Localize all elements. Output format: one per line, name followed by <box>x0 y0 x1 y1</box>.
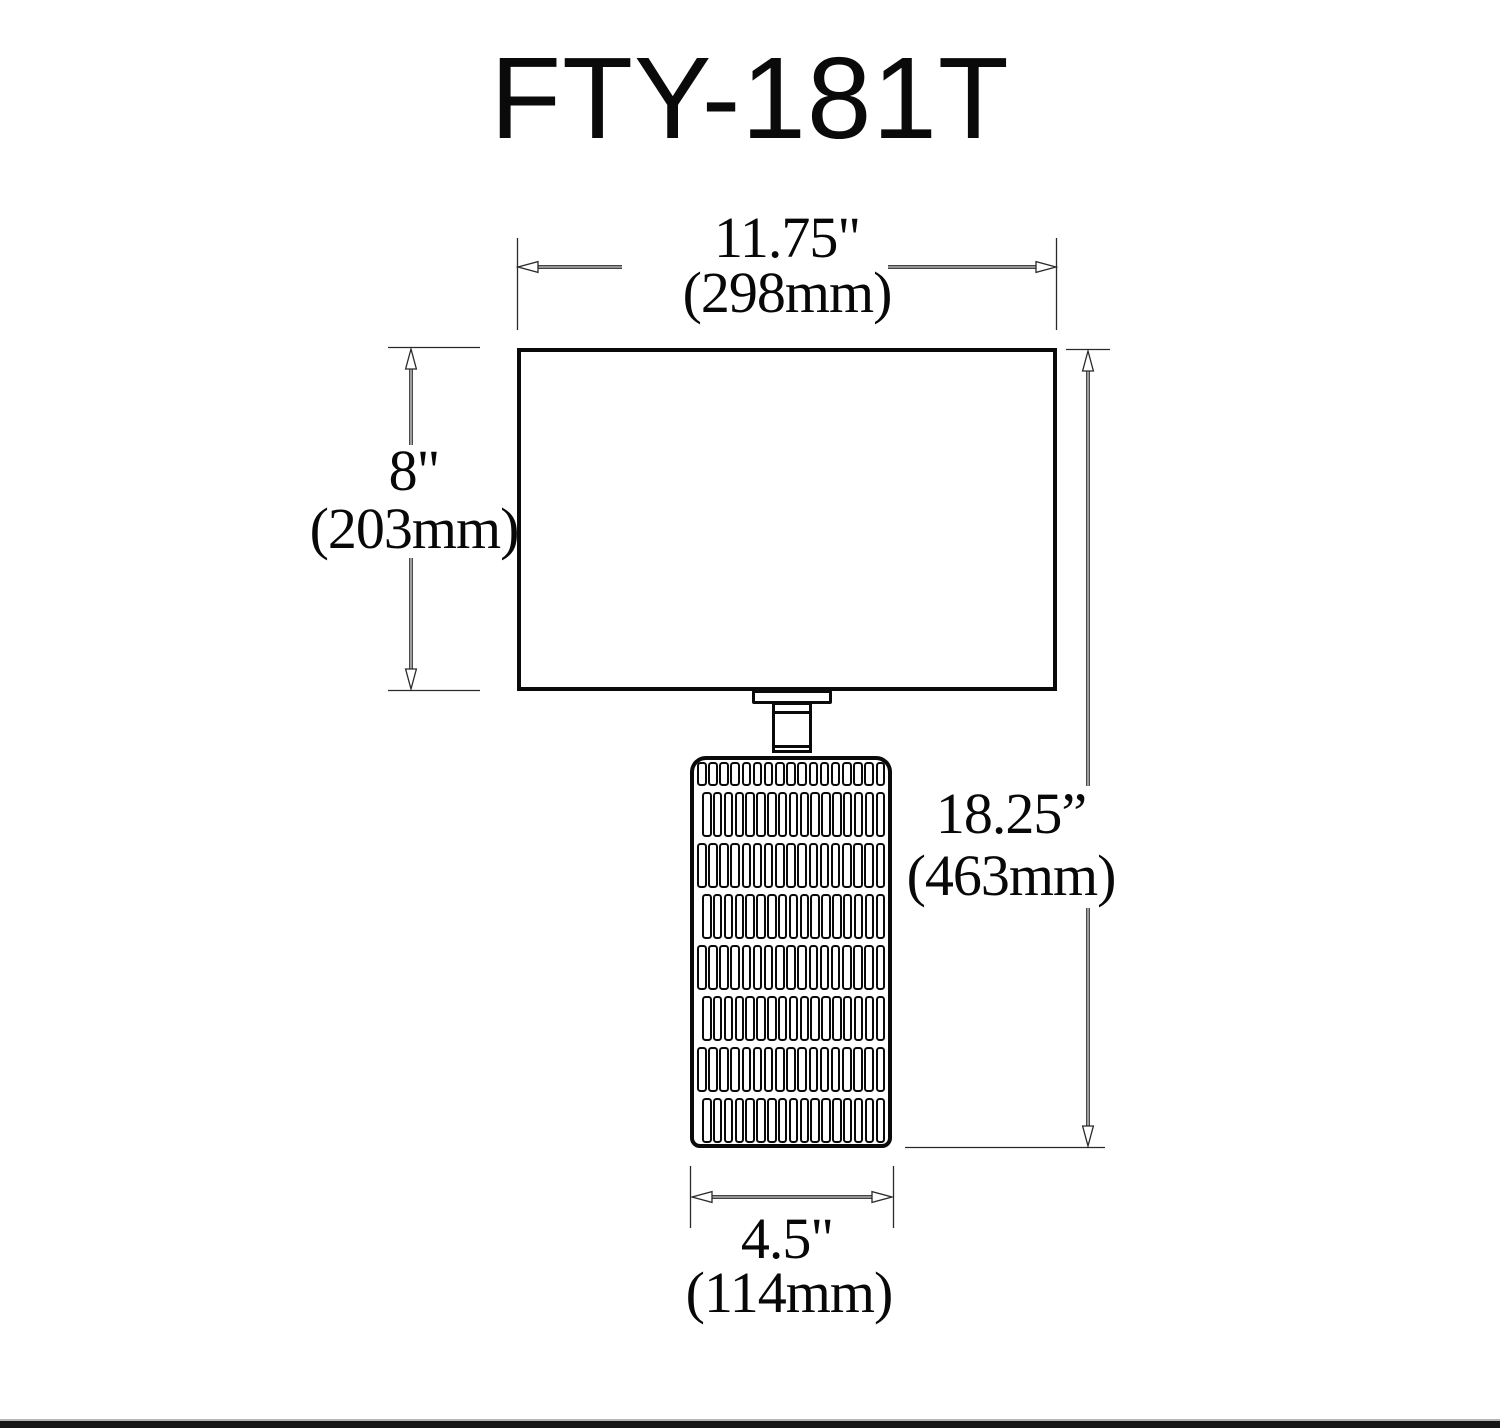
base-texture-cell <box>778 996 788 1041</box>
base-texture-cell <box>865 1098 875 1143</box>
base-texture-cell <box>697 1047 707 1092</box>
base-texture-cell <box>797 762 807 786</box>
arrow-up-icon <box>406 349 417 369</box>
base-texture-cell <box>832 792 842 837</box>
lamp-base-texture <box>690 756 892 1148</box>
base-texture-row <box>697 996 885 1041</box>
base-texture-cell <box>853 762 863 786</box>
base-texture-cell <box>864 762 874 786</box>
image-bottom-edge-bar <box>0 1419 1500 1428</box>
base-texture-cell <box>724 792 734 837</box>
base-texture-cell <box>786 945 796 990</box>
base-texture-cell <box>821 894 831 939</box>
base-texture-row <box>697 1098 885 1143</box>
base-texture-cell <box>778 894 788 939</box>
base-texture-cell <box>764 843 774 888</box>
base-texture-cell <box>789 996 799 1041</box>
base-texture-cell <box>853 1047 863 1092</box>
base-texture-cell <box>735 1098 745 1143</box>
base-texture-cell <box>786 843 796 888</box>
base-texture-cell <box>775 762 785 786</box>
base-texture-cell <box>843 996 853 1041</box>
base-texture-cell <box>810 792 820 837</box>
base-texture-cell <box>842 945 852 990</box>
base-texture-cell <box>865 996 875 1041</box>
base-texture-cell <box>810 894 820 939</box>
shade-height-inches-label: 8" <box>389 442 440 500</box>
base-texture-cell <box>843 792 853 837</box>
base-texture-cell <box>753 843 763 888</box>
base-texture-cell <box>876 762 886 786</box>
lamp-shade-outline <box>517 348 1057 691</box>
dimension-shaft <box>712 1196 872 1198</box>
base-texture-cell <box>865 894 875 939</box>
base-texture-cell <box>797 945 807 990</box>
shade-width-inches-label: 11.75" <box>714 209 860 267</box>
base-texture-cell <box>809 843 819 888</box>
base-texture-cell <box>735 996 745 1041</box>
base-texture-cell <box>713 792 723 837</box>
base-texture-cell <box>719 843 729 888</box>
shade-height-mm-label: (203mm) <box>310 500 519 558</box>
base-texture-cell <box>708 843 718 888</box>
base-width-mm-label: (114mm) <box>686 1264 893 1322</box>
base-texture-cell <box>697 762 707 786</box>
base-texture-cell <box>745 792 755 837</box>
base-texture-cell <box>876 996 886 1041</box>
lamp-neck-seam-bottom <box>775 745 809 748</box>
base-texture-cell <box>742 843 752 888</box>
base-texture-cell <box>719 762 729 786</box>
base-texture-cell <box>764 1047 774 1092</box>
base-texture-cell <box>713 1098 723 1143</box>
arrow-left-icon <box>518 262 538 273</box>
base-texture-cell <box>820 762 830 786</box>
base-texture-cell <box>756 792 766 837</box>
base-texture-cell <box>854 1098 864 1143</box>
base-texture-cell <box>810 996 820 1041</box>
base-texture-cell <box>724 996 734 1041</box>
base-texture-cell <box>775 1047 785 1092</box>
base-texture-row <box>697 894 885 939</box>
base-texture-cell <box>697 945 707 990</box>
dimension-shaft <box>1087 371 1089 786</box>
base-texture-cell <box>842 843 852 888</box>
base-texture-cell <box>778 792 788 837</box>
base-texture-cell <box>713 996 723 1041</box>
dimension-shaft <box>888 266 1036 268</box>
base-texture-cell <box>810 1098 820 1143</box>
base-texture-cell <box>730 843 740 888</box>
base-texture-cell <box>708 945 718 990</box>
base-texture-cell <box>864 1047 874 1092</box>
base-texture-cell <box>800 792 810 837</box>
lamp-neck-seam-top <box>775 711 809 714</box>
base-texture-row <box>697 843 885 888</box>
base-texture-cell <box>820 1047 830 1092</box>
base-texture-cell <box>764 945 774 990</box>
base-texture-cell <box>724 1098 734 1143</box>
base-texture-cell <box>742 762 752 786</box>
base-texture-cell <box>702 1098 712 1143</box>
base-texture-cell <box>767 894 777 939</box>
base-texture-cell <box>854 894 864 939</box>
base-texture-cell <box>842 762 852 786</box>
base-texture-cell <box>789 1098 799 1143</box>
base-texture-cell <box>767 996 777 1041</box>
base-texture-cell <box>753 762 763 786</box>
arrow-left-icon <box>692 1192 712 1203</box>
dimension-diagram: FTY-181T <box>0 0 1500 1428</box>
base-texture-cell <box>735 792 745 837</box>
base-texture-cell <box>713 894 723 939</box>
base-texture-cell <box>800 996 810 1041</box>
base-texture-cell <box>778 1098 788 1143</box>
base-texture-cell <box>864 843 874 888</box>
base-texture-cell <box>775 843 785 888</box>
base-texture-cell <box>745 1098 755 1143</box>
overall-height-inches-label: 18.25” <box>936 785 1086 843</box>
base-texture-cell <box>767 1098 777 1143</box>
base-texture-cell <box>832 1098 842 1143</box>
base-texture-cell <box>702 894 712 939</box>
base-texture-cell <box>821 1098 831 1143</box>
base-texture-cell <box>753 1047 763 1092</box>
arrow-right-icon <box>1036 262 1056 273</box>
shade-width-mm-label: (298mm) <box>683 264 892 322</box>
base-texture-cell <box>865 792 875 837</box>
base-texture-cell <box>853 843 863 888</box>
base-texture-cell <box>876 894 886 939</box>
dimension-shaft <box>538 266 622 268</box>
base-texture-cell <box>775 945 785 990</box>
base-texture-cell <box>853 945 863 990</box>
dimension-shaft <box>410 558 412 669</box>
dimension-shaft <box>410 369 412 445</box>
base-texture-cell <box>786 1047 796 1092</box>
base-texture-row <box>697 945 885 990</box>
base-texture-row <box>697 1047 885 1092</box>
base-texture-cell <box>800 1098 810 1143</box>
base-texture-cell <box>789 792 799 837</box>
overall-height-mm-label: (463mm) <box>907 847 1116 905</box>
base-texture-cell <box>876 1047 886 1092</box>
base-texture-cell <box>724 894 734 939</box>
base-texture-cell <box>821 996 831 1041</box>
base-texture-cell <box>843 1098 853 1143</box>
base-texture-cell <box>831 945 841 990</box>
base-texture-cell <box>708 762 718 786</box>
base-texture-cell <box>797 1047 807 1092</box>
base-texture-cell <box>708 1047 718 1092</box>
base-texture-cell <box>821 792 831 837</box>
base-texture-cell <box>756 996 766 1041</box>
arrow-right-icon <box>872 1192 892 1203</box>
base-texture-row <box>697 762 885 786</box>
base-texture-cell <box>730 1047 740 1092</box>
base-texture-cell <box>831 843 841 888</box>
base-texture-cell <box>797 843 807 888</box>
base-texture-cell <box>842 1047 852 1092</box>
arrow-down-icon <box>1083 1126 1094 1146</box>
base-texture-cell <box>876 945 886 990</box>
base-texture-cell <box>789 894 799 939</box>
base-texture-cell <box>702 792 712 837</box>
base-texture-cell <box>843 894 853 939</box>
arrow-down-icon <box>406 669 417 689</box>
base-texture-cell <box>809 762 819 786</box>
base-texture-cell <box>767 792 777 837</box>
base-texture-cell <box>809 1047 819 1092</box>
base-texture-cell <box>745 894 755 939</box>
base-texture-cell <box>735 894 745 939</box>
base-texture-cell <box>745 996 755 1041</box>
base-texture-cell <box>697 843 707 888</box>
base-texture-cell <box>753 945 763 990</box>
dimension-shaft <box>1087 908 1089 1126</box>
arrow-up-icon <box>1083 351 1094 371</box>
base-texture-cell <box>786 762 796 786</box>
base-texture-cell <box>854 792 864 837</box>
base-texture-cell <box>854 996 864 1041</box>
base-texture-cell <box>764 762 774 786</box>
base-texture-cell <box>800 894 810 939</box>
base-texture-cell <box>820 945 830 990</box>
base-texture-cell <box>809 945 819 990</box>
base-texture-cell <box>719 945 729 990</box>
base-texture-cell <box>702 996 712 1041</box>
base-texture-cell <box>864 945 874 990</box>
base-texture-cell <box>742 1047 752 1092</box>
model-number-title: FTY-181T <box>0 40 1500 156</box>
base-texture-cell <box>832 996 842 1041</box>
base-texture-cell <box>820 843 830 888</box>
base-texture-cell <box>756 894 766 939</box>
base-texture-cell <box>876 843 886 888</box>
base-texture-cell <box>831 762 841 786</box>
base-texture-cell <box>876 792 886 837</box>
base-texture-cell <box>876 1098 886 1143</box>
base-texture-cell <box>719 1047 729 1092</box>
base-texture-row <box>697 792 885 837</box>
base-texture-cell <box>756 1098 766 1143</box>
base-texture-cell <box>742 945 752 990</box>
base-texture-cell <box>831 1047 841 1092</box>
base-texture-cell <box>730 762 740 786</box>
base-texture-cell <box>832 894 842 939</box>
base-texture-cell <box>730 945 740 990</box>
